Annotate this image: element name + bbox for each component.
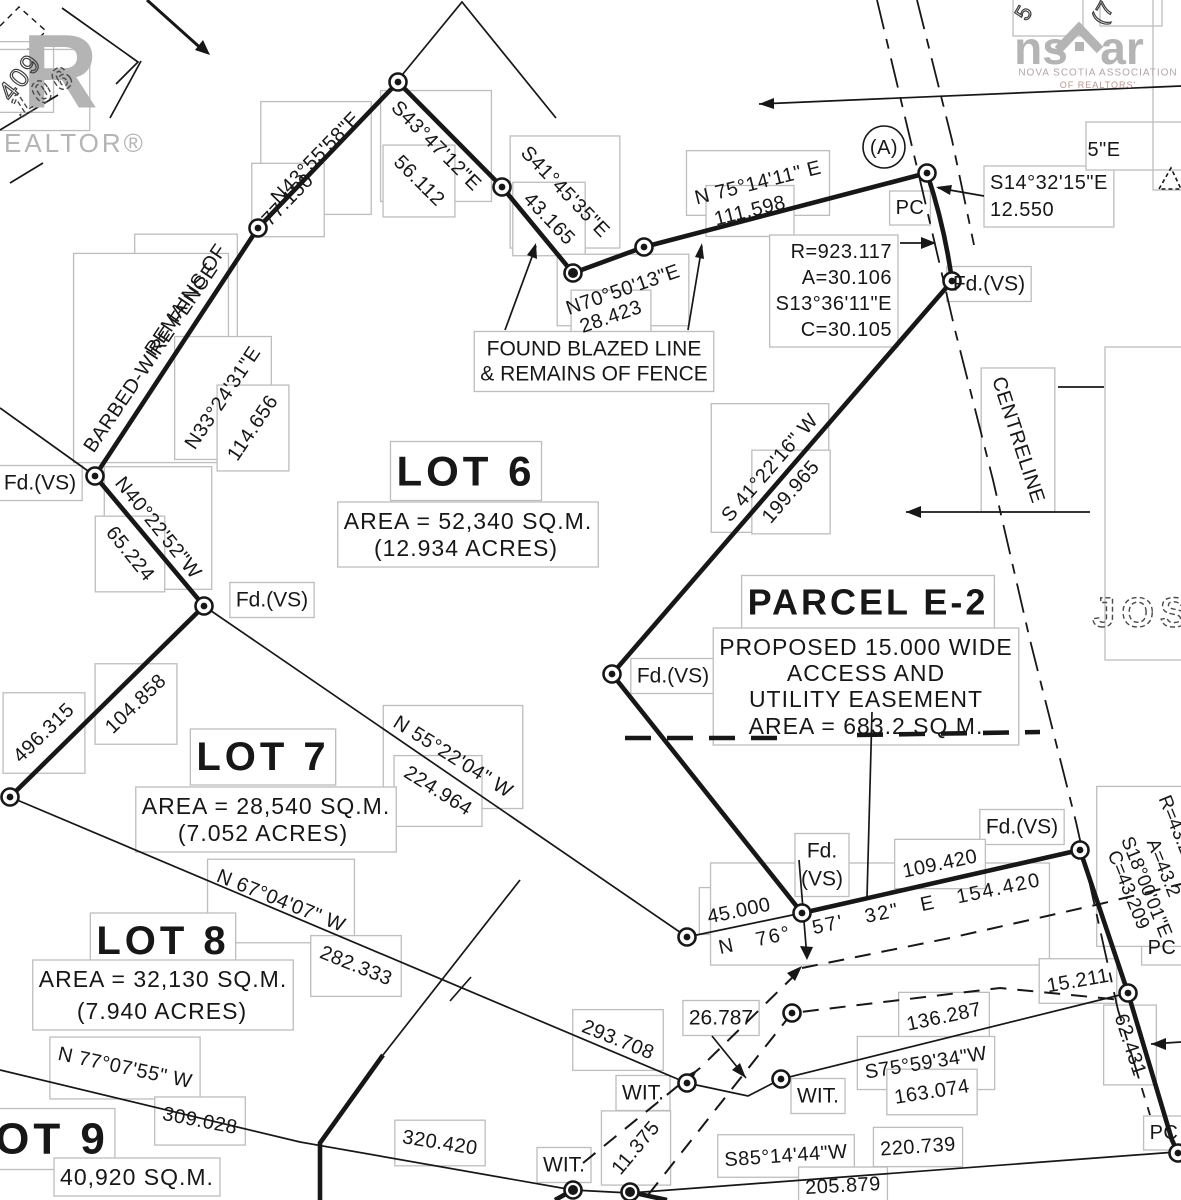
label-lot8-area: AREA = 32,130 SQ.M. — [39, 966, 287, 992]
label-wit3: WIT. — [543, 1154, 585, 1177]
label-lot8-acres: (7.940 ACRES) — [77, 998, 247, 1024]
arrowhead — [936, 185, 952, 195]
label-lot9-area: 40,920 SQ.M. — [60, 1164, 214, 1190]
dashed-triangle-symbol — [1159, 168, 1181, 189]
label-parcel-title: PARCEL E-2 — [748, 582, 989, 623]
survey-marker-dot — [201, 603, 208, 610]
label-curve1-a: A=30.106 — [802, 267, 892, 289]
label-lot8-title: LOT 8 — [96, 919, 229, 963]
label-s14-bearing: S14°32'15"E — [990, 172, 1108, 194]
label-point-a: (A) — [870, 137, 898, 159]
label-lot7-title: LOT 7 — [196, 735, 329, 779]
survey-marker-dot — [609, 671, 616, 678]
arrowhead — [195, 40, 210, 55]
label-parcel-group: PROPOSED 15.000 WIDE ACCESS AND UTILITY … — [719, 634, 1013, 739]
label-found-line2: & REMAINS OF FENCE — [480, 363, 708, 386]
label-frag5: 5 — [1010, 0, 1039, 24]
label-fd-vs-5: Fd.(VS) — [986, 816, 1058, 839]
arrowhead — [759, 98, 774, 109]
nsar-line2: OF REALTORS' — [1060, 80, 1136, 90]
survey-marker-dot — [799, 910, 806, 917]
label-parcel-l1: PROPOSED 15.000 WIDE — [719, 634, 1013, 660]
survey-marker-dot — [7, 794, 14, 801]
boundary-lot8-lot9 — [320, 1055, 383, 1200]
label-curve1-bearing: S13°36'11"E — [776, 293, 892, 315]
realtor-logo-text: REALTOR® — [0, 128, 146, 158]
label-road-name-jos: JOS — [1092, 589, 1181, 636]
label-pc-top: PC — [896, 197, 925, 219]
label-parcel-l4: AREA = 683.2 SQ.M. — [749, 713, 984, 739]
label-parcel-l2: ACCESS AND — [787, 660, 945, 686]
label-lot6-area: AREA = 52,340 SQ.M. — [344, 508, 592, 534]
survey-marker-dot — [625, 1187, 635, 1197]
survey-marker-dot — [641, 244, 648, 251]
survey-marker-dot — [1077, 847, 1084, 854]
survey-marker-dot — [92, 473, 99, 480]
label-fd-vs-4b: (VS) — [801, 868, 843, 891]
survey-plan-canvas: R REALTOR® ns ar NOVA SCOTIA ASSOCIATION… — [0, 0, 1181, 1200]
label-lot6-area-group: AREA = 52,340 SQ.M. (12.934 ACRES) — [344, 508, 592, 561]
arrowhead — [906, 506, 921, 518]
label-frag5e: 5"E — [1087, 139, 1120, 161]
label-pc-bottom: PC — [1150, 1122, 1179, 1144]
label-wit2: WIT. — [797, 1085, 839, 1108]
arrowhead — [787, 966, 802, 981]
label-lot7-acres: (7.052 ACRES) — [178, 820, 348, 846]
survey-marker-dot — [499, 184, 506, 191]
found-leader-2 — [688, 246, 702, 330]
label-lot6-title: LOT 6 — [396, 448, 535, 495]
label-lot7-area: AREA = 28,540 SQ.M. — [142, 793, 390, 819]
nsar-logo-ar: ar — [1100, 22, 1144, 74]
survey-marker-dot — [684, 1080, 691, 1087]
label-d26: 26.787 — [689, 1007, 753, 1030]
survey-marker-dot — [789, 1010, 796, 1017]
survey-marker-dot — [778, 1076, 785, 1083]
survey-marker-dot — [568, 1185, 578, 1195]
lot-line-lot8 — [383, 880, 520, 1055]
label-fd-vs-2: Fd.(VS) — [4, 472, 76, 495]
nsar-house-dot — [1075, 42, 1084, 51]
label-parcel-l3: UTILITY EASEMENT — [749, 686, 983, 712]
label-wit1: WIT. — [622, 1082, 664, 1105]
label-fd-vs-3: Fd.(VS) — [236, 589, 308, 612]
found-leader-1 — [505, 246, 536, 330]
label-s14-dist: 12.550 — [990, 199, 1054, 221]
label-lot9-title: OT 9 — [0, 1115, 109, 1164]
label-curve1-c: C=30.105 — [801, 319, 892, 341]
survey-marker-dot — [1125, 990, 1132, 997]
survey-marker-dot — [924, 170, 931, 177]
survey-marker-dot — [684, 934, 691, 941]
label-curve1-r: R=923.117 — [791, 241, 892, 263]
label-pc-mid: PC — [1148, 937, 1177, 959]
survey-plan-page: R REALTOR® ns ar NOVA SCOTIA ASSOCIATION… — [0, 0, 1181, 1200]
label-d205: 205.879 — [805, 1173, 882, 1199]
label-lot6-acres: (12.934 ACRES) — [374, 535, 558, 561]
survey-marker-dot — [568, 268, 578, 278]
survey-marker-dot — [255, 225, 262, 232]
label-fd-vs-6: Fd.(VS) — [637, 665, 709, 688]
survey-marker-dot — [395, 79, 402, 86]
arrowhead — [695, 243, 704, 259]
arrowhead — [732, 1063, 746, 1078]
north-corner-arrow — [147, 0, 205, 52]
label-fd-vs-4a: Fd. — [807, 840, 837, 863]
nsar-line1: NOVA SCOTIA ASSOCIATION — [1018, 68, 1177, 79]
label-fd-vs-1: Fd.(VS) — [953, 273, 1025, 296]
crossing-tick — [450, 977, 471, 1001]
label-found-line1: FOUND BLAZED LINE — [487, 338, 702, 361]
